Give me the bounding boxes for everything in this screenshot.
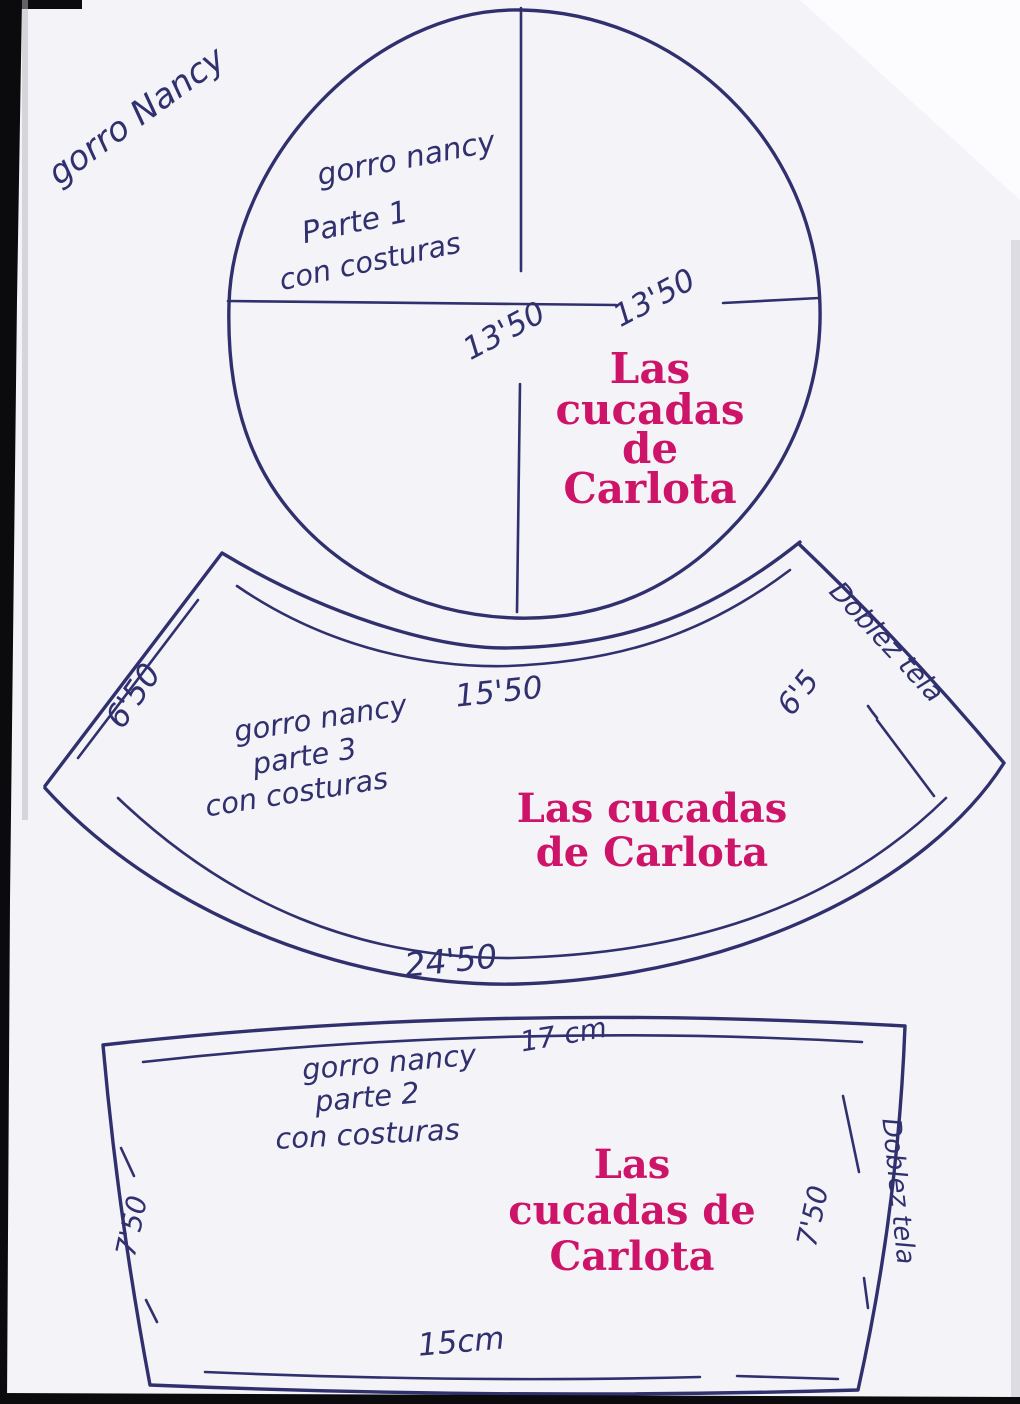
paper-right-edge-shadow	[1011, 240, 1020, 1404]
brand-text-line: Carlota	[549, 1233, 714, 1280]
piece2-dim-bottom: 15cm	[416, 1320, 506, 1363]
scanned-pattern-page: gorro nancy Parte 1 con costuras 13'50 1…	[0, 0, 1020, 1404]
piece3-brand-watermark: Las cucadas de Carlota	[517, 785, 788, 876]
brand-text-line: Las cucadas	[517, 785, 788, 832]
brand-text-line: Las	[594, 1141, 671, 1188]
scan-edge-top-left	[0, 0, 82, 9]
brand-text-line: cucadas de	[508, 1187, 755, 1234]
brand-text-line: de Carlota	[536, 829, 768, 876]
brand-text-line: Carlota	[563, 464, 736, 513]
scan-edge-left-shadow	[22, 0, 28, 820]
pattern-drawing: gorro nancy Parte 1 con costuras 13'50 1…	[0, 0, 1020, 1404]
